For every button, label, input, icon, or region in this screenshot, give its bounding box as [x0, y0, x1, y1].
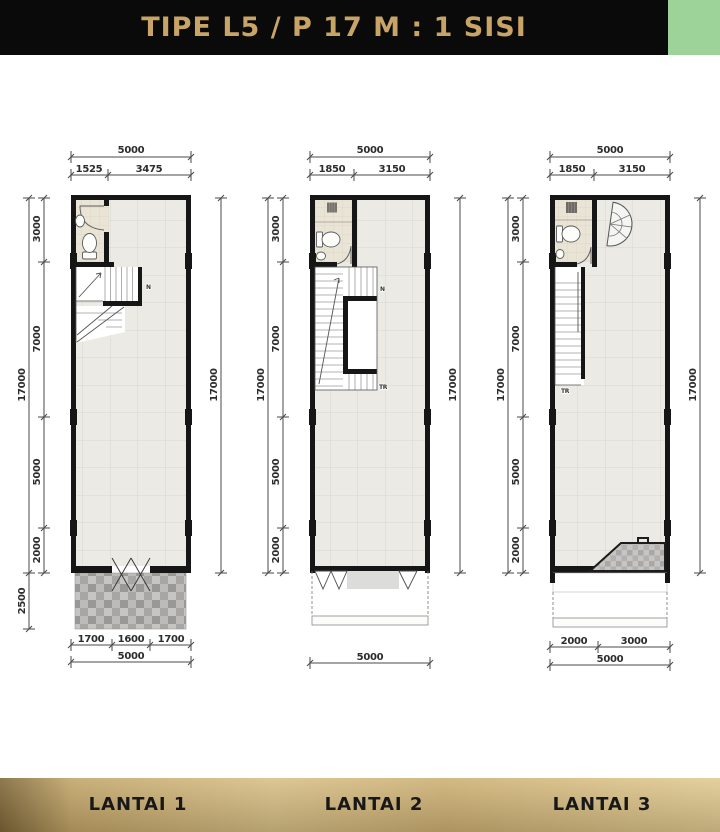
staircase	[555, 267, 585, 385]
staircase	[315, 267, 377, 390]
dim-height-split-2: 7000	[32, 325, 43, 352]
dim-width-total: 5000	[357, 145, 384, 156]
dim-height-total-left: 17000	[496, 368, 507, 402]
dim-height-total-left: 17000	[256, 368, 267, 402]
toilet-tank-icon	[83, 252, 97, 259]
floorplan-lantai-2: N TR 5000 1850 3150 3000 7000 5000 2000	[256, 145, 466, 669]
canopy-projection-lines	[553, 592, 667, 618]
stair-label-down: TR	[379, 384, 388, 391]
dim-bottom-total: 5000	[597, 654, 624, 665]
sink-icon	[76, 215, 85, 227]
dim-bottom-total: 5000	[118, 651, 145, 662]
dim-width-split-2: 3150	[619, 164, 646, 175]
dim-height-split-1: 3000	[511, 215, 522, 242]
floorplans-canvas: N 5000 1525 3475 3000 7000 5000 2000 170…	[0, 0, 720, 780]
carport-area	[75, 573, 186, 629]
dim-height-split-3: 5000	[271, 458, 282, 485]
dim-bottom-total: 5000	[357, 652, 384, 663]
balcony-slab	[347, 571, 399, 589]
slab-post-left	[550, 573, 555, 583]
dim-carport-depth: 2500	[17, 587, 28, 614]
canopy-strip	[553, 618, 667, 627]
footer-label-lantai-2: LANTAI 2	[325, 778, 424, 832]
dim-bottom-split-1: 2000	[561, 636, 588, 647]
toilet-icon	[322, 232, 340, 247]
stair-label-up: N	[380, 286, 385, 293]
front-slab	[553, 573, 667, 592]
footer-label-lantai-1: LANTAI 1	[89, 778, 188, 832]
sink-icon	[556, 250, 564, 259]
footer-bar: LANTAI 1 LANTAI 2 LANTAI 3	[0, 778, 720, 832]
dim-height-split-4: 2000	[511, 536, 522, 563]
dim-height-split-3: 5000	[511, 458, 522, 485]
dim-height-split-2: 7000	[271, 325, 282, 352]
dim-height-total-right: 17000	[448, 368, 459, 402]
sink-icon	[317, 252, 326, 260]
floorplan-lantai-3: TR 5000 1850 3150 3000 7000 50	[496, 145, 706, 671]
dim-width-split-2: 3475	[136, 164, 163, 175]
dim-bottom-split-3: 1700	[158, 634, 185, 645]
dim-height-split-3: 5000	[32, 458, 43, 485]
toilet-icon	[562, 226, 580, 242]
dim-width-split-1: 1850	[559, 164, 586, 175]
canopy-strip	[312, 616, 428, 625]
dim-bottom-split-2: 3000	[621, 636, 648, 647]
dim-height-split-1: 3000	[32, 215, 43, 242]
slab-post-right	[665, 573, 670, 583]
toilet-icon	[83, 234, 97, 253]
page: TIPE L5 / P 17 M : 1 SISI	[0, 0, 720, 832]
dim-height-total-right: 17000	[209, 368, 220, 402]
dim-height-total-left: 17000	[17, 368, 28, 402]
dim-height-split-1: 3000	[271, 215, 282, 242]
dim-width-split-1: 1850	[319, 164, 346, 175]
floorplan-lantai-1: N 5000 1525 3475 3000 7000 5000 2000 170…	[17, 145, 227, 668]
footer-label-lantai-3: LANTAI 3	[553, 778, 652, 832]
dim-bottom-split-2: 1600	[118, 634, 145, 645]
dim-width-total: 5000	[118, 145, 145, 156]
dim-height-split-4: 2000	[32, 536, 43, 563]
dim-bottom-split-1: 1700	[78, 634, 105, 645]
dim-width-total: 5000	[597, 145, 624, 156]
dim-width-split-1: 1525	[76, 164, 103, 175]
dim-height-total-right: 17000	[688, 368, 699, 402]
dim-height-split-2: 7000	[511, 325, 522, 352]
dim-width-split-2: 3150	[379, 164, 406, 175]
dim-height-split-4: 2000	[271, 536, 282, 563]
stair-label-up: N	[146, 284, 151, 291]
stair-label-down: TR	[561, 388, 570, 395]
